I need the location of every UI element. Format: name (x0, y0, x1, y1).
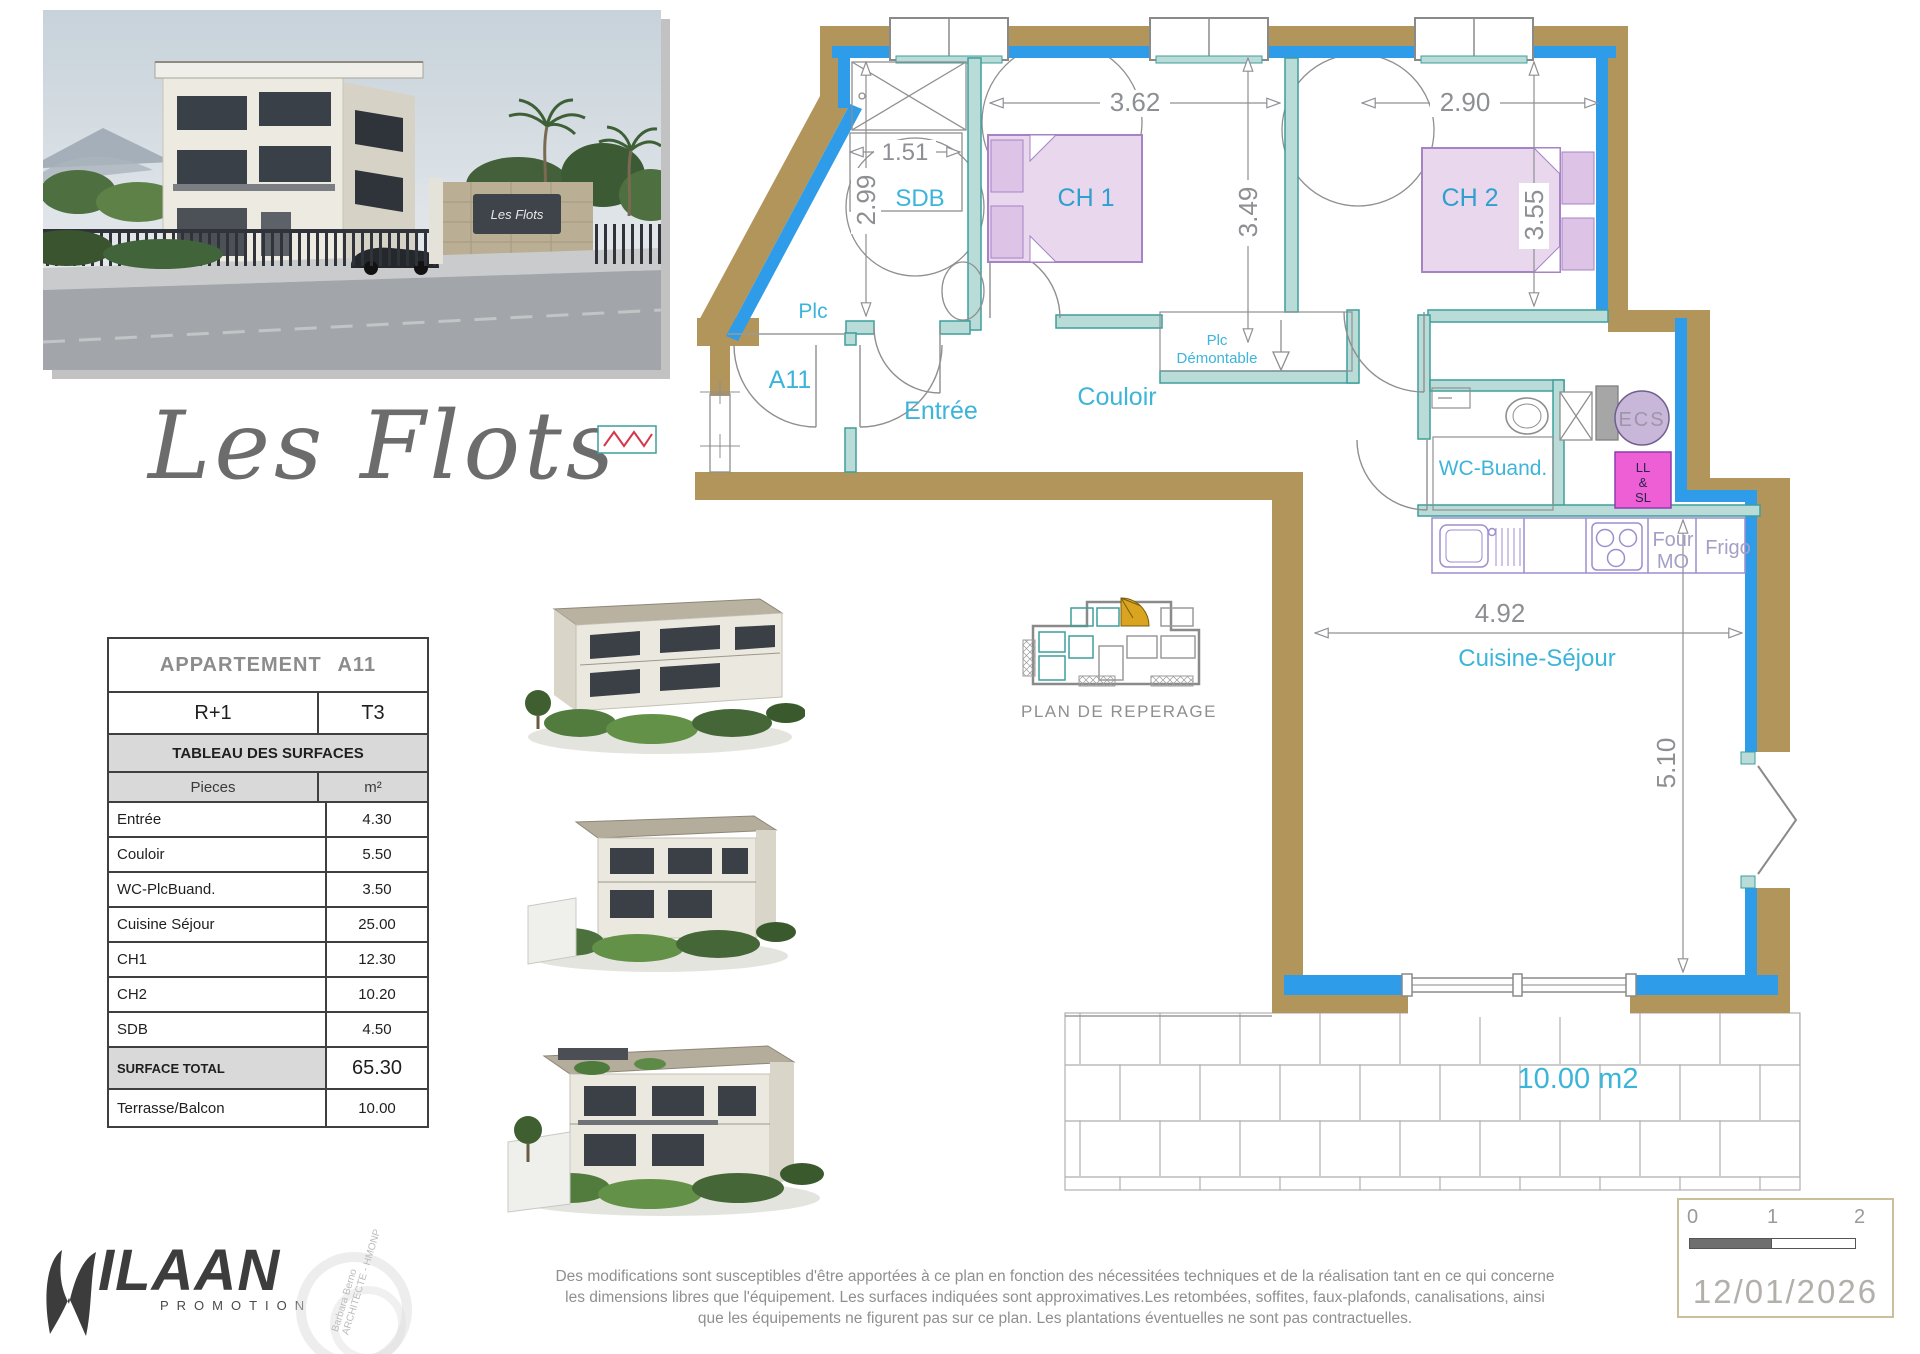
disclaimer-line: Des modifications sont susceptibles d'êt… (400, 1266, 1710, 1287)
duct-shaft (1560, 386, 1618, 440)
label-amp: & (1639, 475, 1648, 490)
dim-sdb-height: 2.99 (851, 175, 881, 226)
scale-tick-0: 0 (1687, 1206, 1698, 1229)
closet-sdb (852, 62, 966, 130)
label-wc-buand: WC-Buand. (1439, 457, 1548, 480)
label-plc-demontable-1: Plc (1207, 332, 1228, 349)
dim-ch1-width: 3.62 (1110, 87, 1161, 117)
label-terrace-area: 10.00 m2 (1518, 1063, 1639, 1095)
dim-sejour-height: 5.10 (1651, 738, 1681, 789)
label-unit-a11: A11 (769, 366, 812, 394)
logo-subtitle: PROMOTION (160, 1298, 312, 1313)
terrace (1065, 1013, 1800, 1190)
scale-tick-2: 2 (1854, 1206, 1865, 1229)
label-couloir: Couloir (1077, 383, 1156, 411)
key-plan (1023, 598, 1199, 686)
scale-bar-empty (1771, 1238, 1856, 1249)
page: Les Flots Les Flots APPARTEMENT A11 R+1 … (0, 0, 1920, 1354)
promoter-logo: ILAAN PROMOTION (40, 1246, 320, 1346)
dim-ch2-width: 2.90 (1440, 87, 1491, 117)
label-sl: SL (1635, 490, 1651, 505)
scale-bar: 0 1 2 (1677, 1198, 1894, 1270)
dim-sejour-width: 4.92 (1475, 598, 1526, 628)
label-entree: Entrée (904, 397, 978, 425)
label-ch1: CH 1 (1058, 184, 1115, 212)
dim-sdb-width: 1.51 (882, 139, 929, 166)
label-ch2: CH 2 (1442, 184, 1499, 212)
label-mo: MO (1657, 551, 1689, 573)
date-box: 12/01/2026 (1677, 1268, 1894, 1318)
label-frigo: Frigo (1705, 537, 1751, 559)
scale-tick-1: 1 (1767, 1206, 1778, 1229)
window-ch2 (1415, 18, 1533, 63)
dim-ch1-height: 3.49 (1233, 187, 1263, 238)
label-ecs: ECS (1618, 409, 1665, 431)
scale-bar-filled (1689, 1238, 1773, 1249)
label-cuisine-sejour: Cuisine-Séjour (1458, 645, 1615, 672)
kitchen-counter (1432, 518, 1745, 573)
balcony-door (1736, 752, 1798, 888)
logo-text: ILAAN (98, 1246, 312, 1296)
label-ll: LL (1636, 460, 1650, 475)
dim-ch2-height: 3.55 (1519, 190, 1549, 241)
label-plc: Plc (798, 300, 827, 323)
window-ch1 (1150, 18, 1268, 63)
entry-marker (598, 426, 656, 453)
key-plan-caption: PLAN DE REPERAGE (1021, 702, 1217, 721)
floor-plan: 3.62 2.90 1.51 2.99 3.49 3.55 4.92 5.10 … (0, 0, 1920, 1354)
label-plc-demontable-2: Démontable (1177, 350, 1258, 367)
door-sdb (874, 327, 940, 393)
bay-window (1402, 971, 1636, 1017)
door-wc (1357, 440, 1427, 510)
plan-date: 12/01/2026 (1693, 1273, 1878, 1311)
logo-m-icon (40, 1246, 98, 1338)
wc-fixtures (1432, 388, 1548, 434)
disclaimer-line: que les équipements ne figurent pas sur … (400, 1308, 1710, 1329)
label-sdb: SDB (895, 185, 944, 212)
window-sdb (890, 18, 1008, 63)
label-four: Four (1652, 529, 1693, 551)
disclaimer-line: les dimensions libres que l'équipement. … (400, 1287, 1710, 1308)
entry-door-frame (710, 394, 730, 472)
legal-disclaimer: Des modifications sont susceptibles d'êt… (400, 1266, 1710, 1329)
